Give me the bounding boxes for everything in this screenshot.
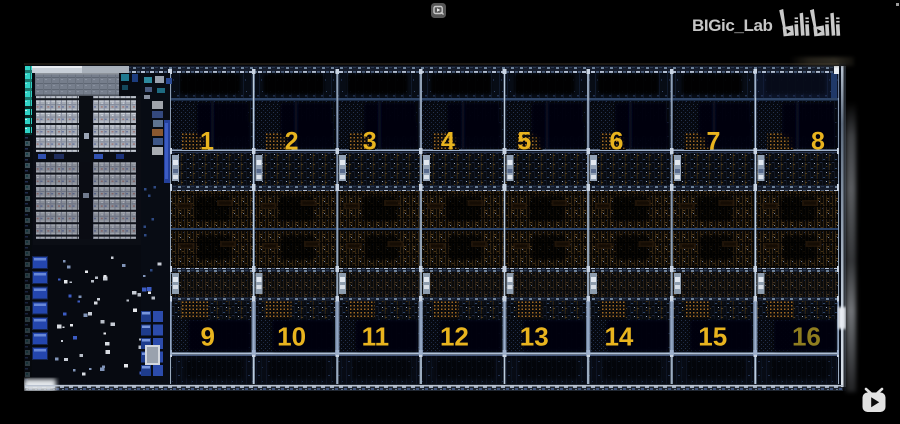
svg-text:7: 7 — [707, 128, 721, 156]
svg-text:14: 14 — [604, 322, 633, 352]
svg-text:2: 2 — [285, 128, 299, 156]
svg-text:16: 16 — [792, 322, 821, 352]
svg-text:9: 9 — [200, 322, 214, 352]
svg-text:11: 11 — [362, 322, 390, 352]
svg-text:4: 4 — [441, 128, 455, 156]
svg-text:5: 5 — [517, 128, 531, 156]
svg-text:10: 10 — [277, 322, 306, 352]
svg-text:15: 15 — [698, 322, 727, 352]
svg-text:8: 8 — [811, 128, 825, 156]
svg-text:1: 1 — [200, 128, 214, 156]
svg-text:6: 6 — [609, 128, 623, 156]
svg-text:12: 12 — [440, 322, 469, 352]
svg-text:13: 13 — [520, 322, 549, 352]
svg-text:3: 3 — [363, 128, 377, 156]
